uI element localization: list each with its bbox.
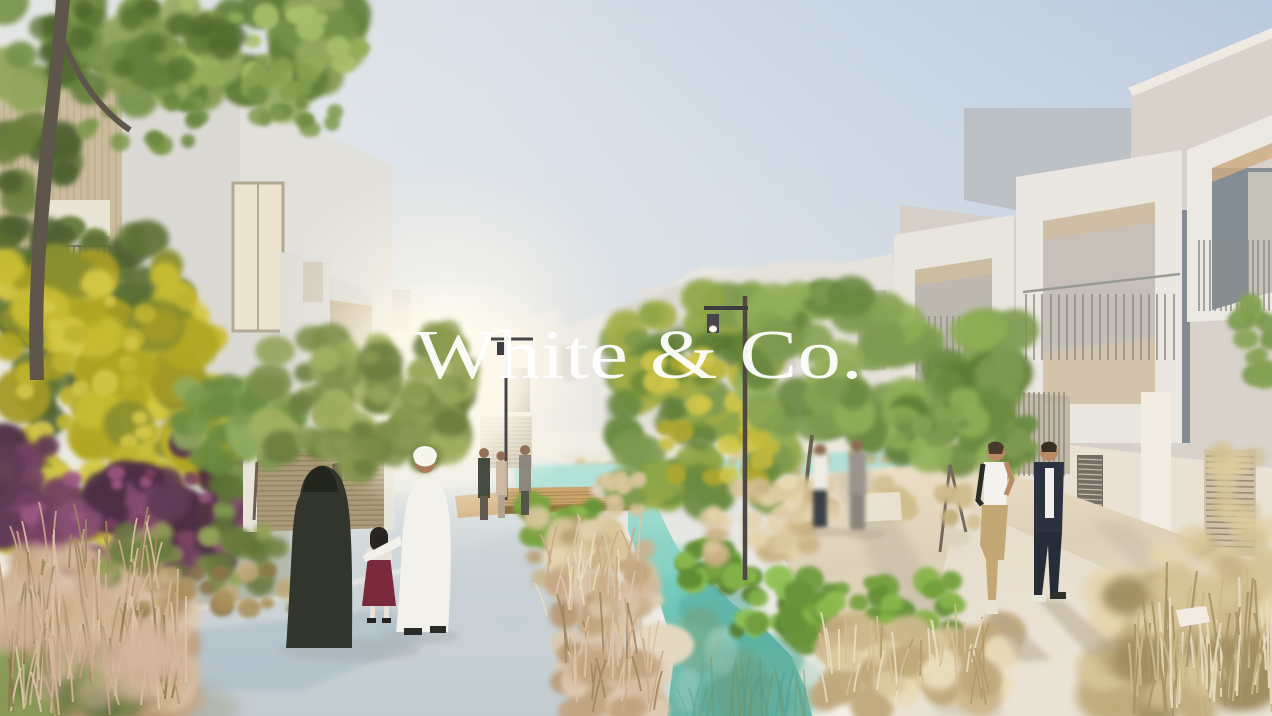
svg-text:White & Co.: White & Co.	[415, 317, 863, 394]
